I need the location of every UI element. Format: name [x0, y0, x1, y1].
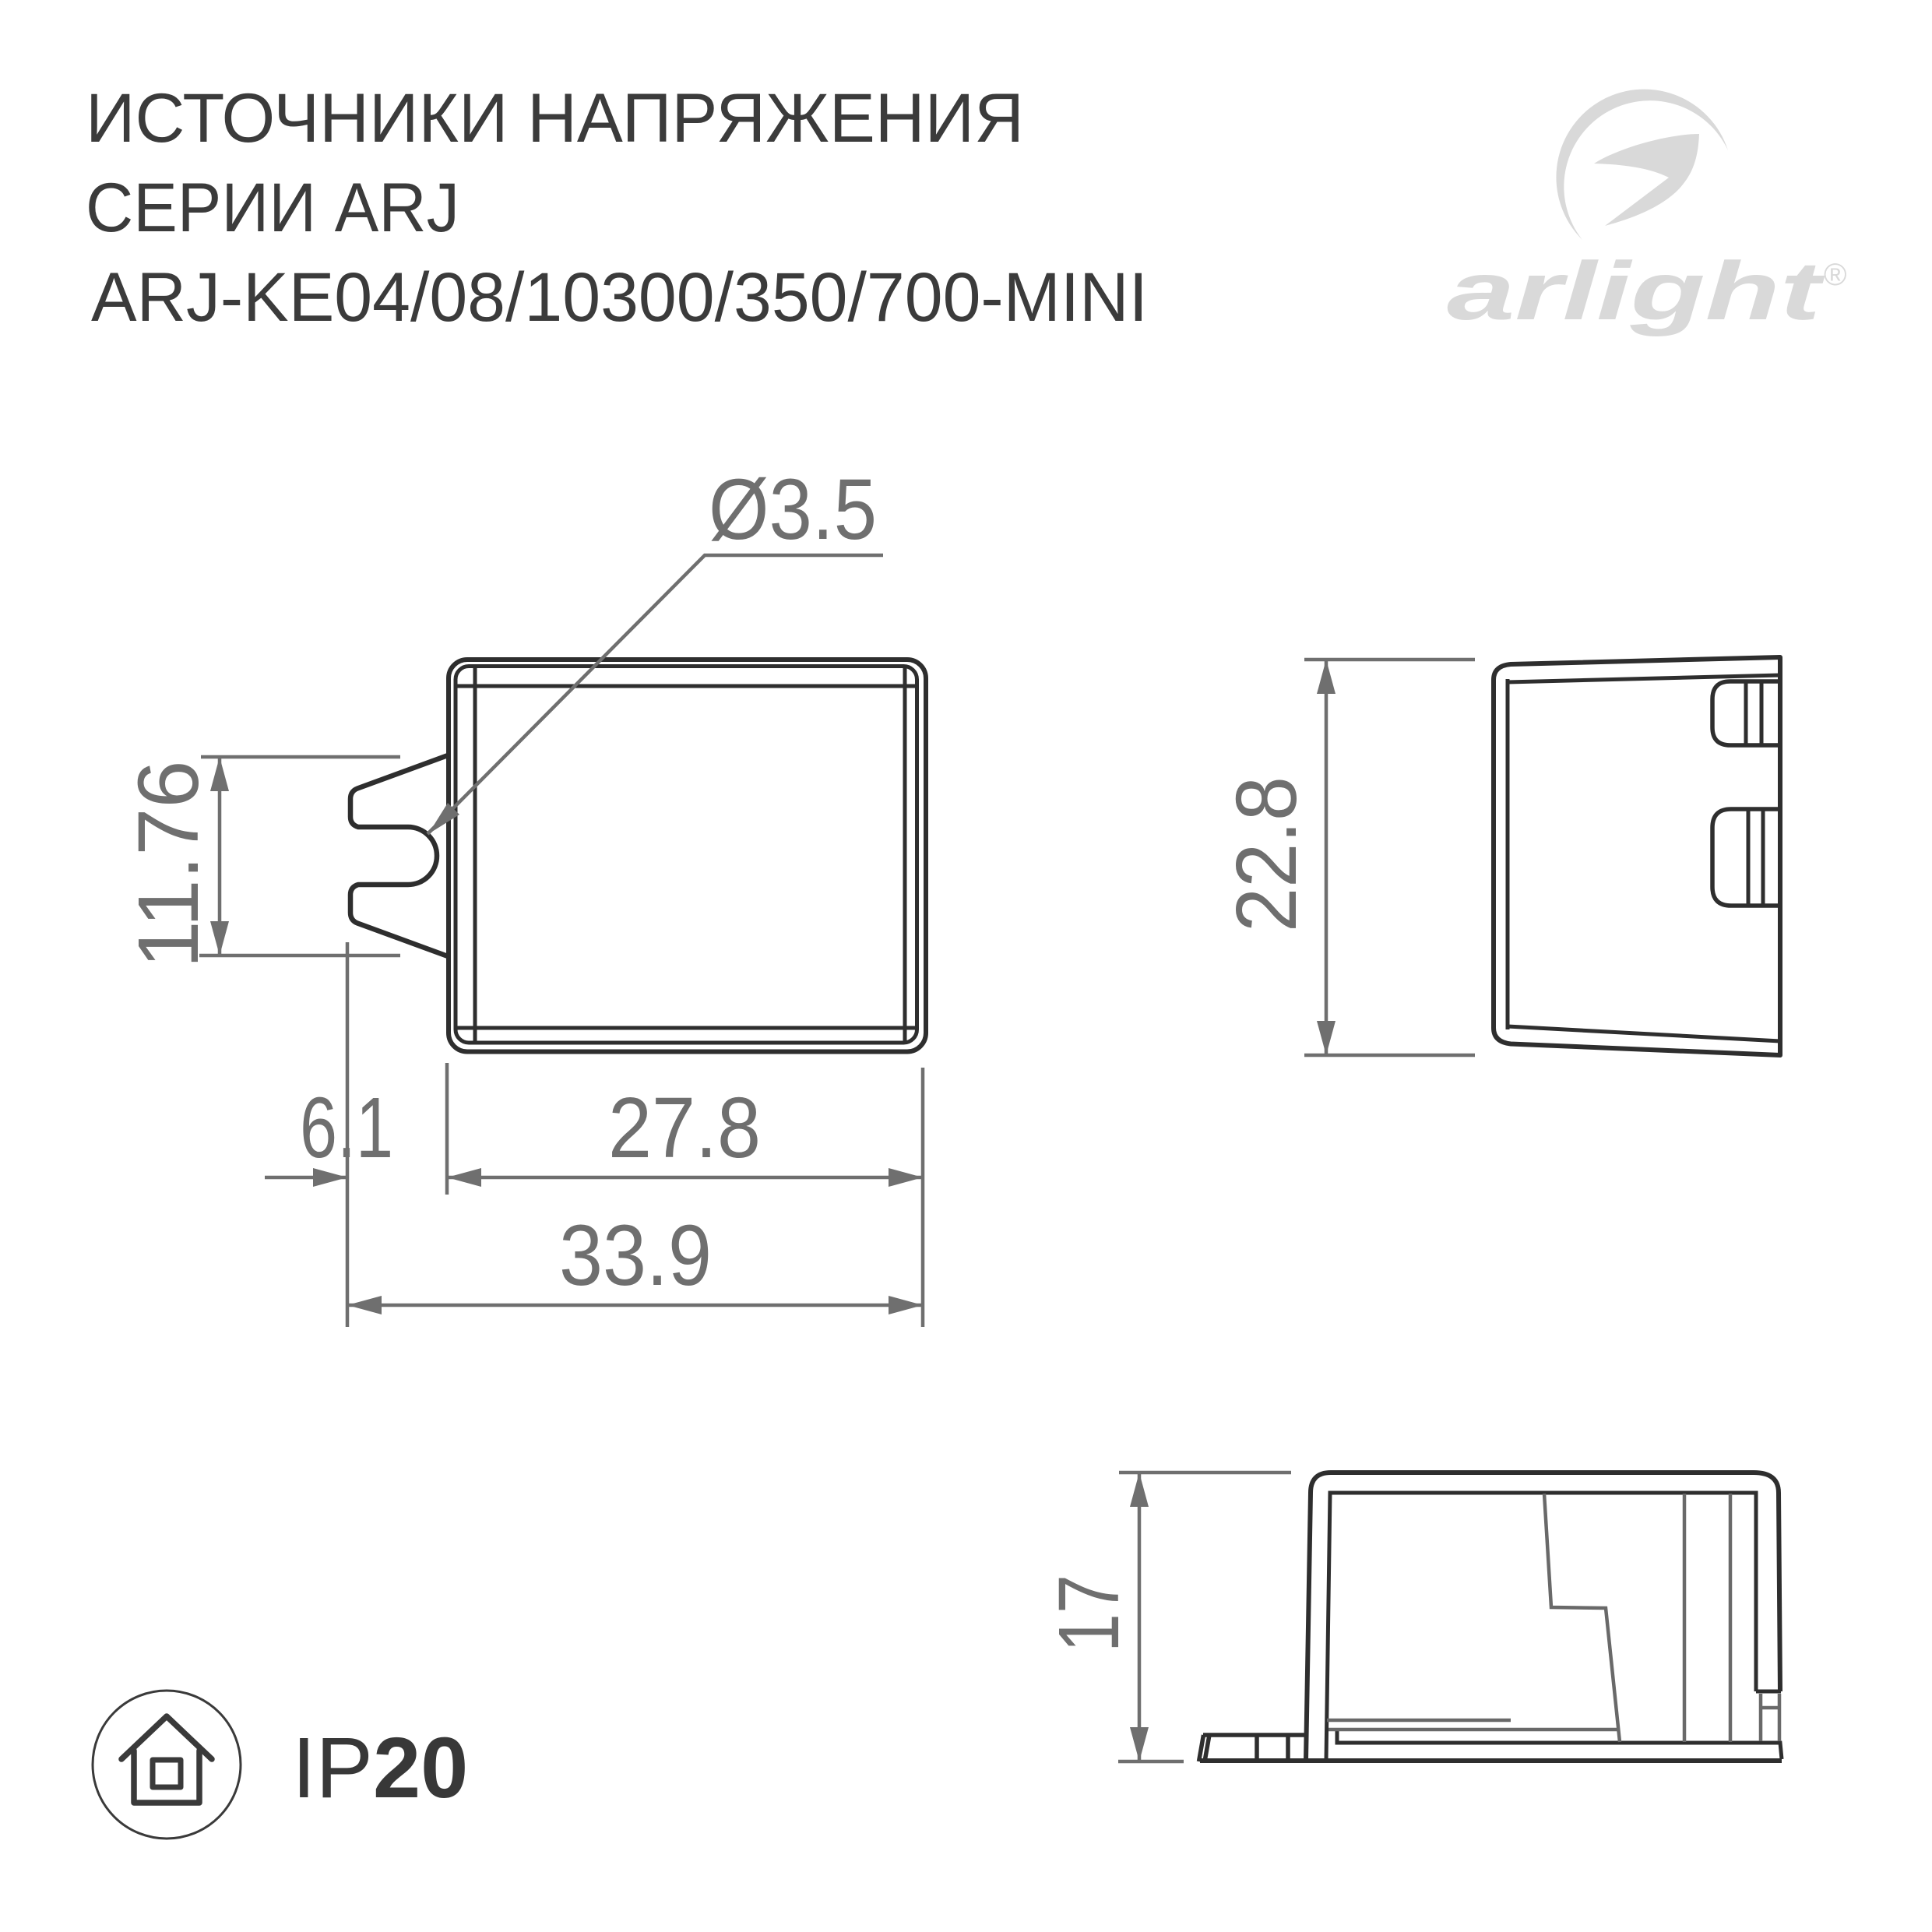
svg-text:arlight: arlight — [1447, 245, 1825, 337]
svg-text:®: ® — [1824, 258, 1846, 292]
svg-text:11.76: 11.76 — [121, 761, 216, 969]
svg-text:33.9: 33.9 — [559, 1208, 712, 1304]
svg-text:Ø3.5: Ø3.5 — [709, 462, 877, 558]
svg-text:ARJ-KE04/08/10300/350/700-MINI: ARJ-KE04/08/10300/350/700-MINI — [91, 258, 1148, 336]
svg-text:6.1: 6.1 — [300, 1080, 393, 1176]
svg-text:СЕРИИ ARJ: СЕРИИ ARJ — [86, 168, 459, 246]
svg-text:22.8: 22.8 — [1219, 776, 1314, 932]
svg-text:27.8: 27.8 — [608, 1080, 761, 1176]
svg-text:ИСТОЧНИКИ НАПРЯЖЕНИЯ: ИСТОЧНИКИ НАПРЯЖЕНИЯ — [86, 79, 1024, 157]
svg-text:IP20: IP20 — [292, 1720, 468, 1816]
svg-text:17: 17 — [1041, 1575, 1137, 1652]
